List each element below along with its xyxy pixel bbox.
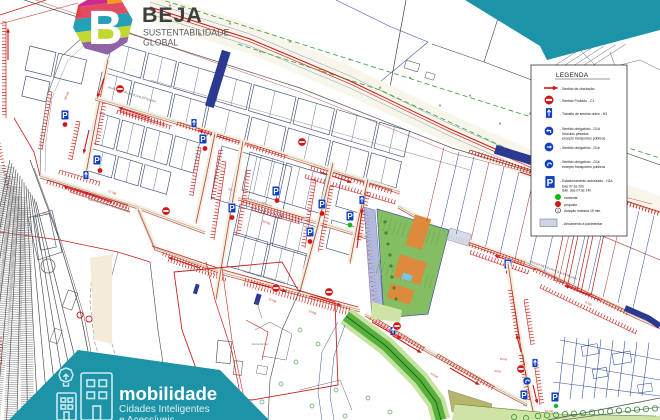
svg-text:P: P [229,204,235,213]
svg-text:- Sentido obrigatório - D1b: - Sentido obrigatório - D1b [560,146,600,150]
svg-text:mobilidade: mobilidade [119,383,217,404]
svg-text:4 lug.: 4 lug. [42,211,50,215]
svg-text:— — —: — — — [599,260,604,269]
svg-text:existente: existente [564,196,578,200]
svg-text:- Sentido de circulação: - Sentido de circulação [560,87,595,91]
svg-text:e Acessíveis: e Acessíveis [119,415,175,420]
svg-text:excepto transportes públicos: excepto transportes públicos [562,137,605,141]
svg-text:— — —: — — — [299,250,303,259]
svg-text:15 lug.: 15 lug. [268,297,278,303]
svg-text:Escola Alentejo: Escola Alentejo [252,343,269,346]
svg-text:Cidades Inteligentes: Cidades Inteligentes [119,404,210,415]
svg-text:- Sentido obrigatório - D1d: - Sentido obrigatório - D1d [560,127,600,131]
svg-text:— — —: — — — [259,170,263,179]
svg-text:proposto: proposto [564,203,577,207]
svg-text:- Sentido obrigatório - D1e: - Sentido obrigatório - D1e [560,160,600,164]
svg-text:SUSTENTABILIDADE: SUSTENTABILIDADE [143,28,229,38]
svg-text:RUA DA METALURGICA ALENTEJANA: RUA DA METALURGICA ALENTEJANA [108,85,157,103]
svg-text:Veículos pesados: Veículos pesados [562,132,589,136]
svg-text:— — —: — — — [350,139,359,143]
svg-text:P: P [552,393,558,402]
svg-text:B: B [88,2,123,55]
svg-text:6 lug.: 6 lug. [585,300,593,306]
svg-text:27 lug.: 27 lug. [108,189,118,196]
svg-text:duração máxima 15 min.: duração máxima 15 min. [564,209,601,213]
svg-text:- Estacionamento autorizado -: - Estacionamento autorizado - H1a [560,179,613,183]
svg-text:P: P [547,178,554,189]
svg-text:LEGENDA: LEGENDA [556,72,589,79]
svg-text:— — —: — — — [280,119,289,123]
svg-text:P: P [319,200,325,209]
svg-text:— — —: — — — [130,69,139,73]
svg-text:P: P [94,156,100,165]
svg-text:26 lug.: 26 lug. [63,90,70,100]
svg-text:8 lug.: 8 lug. [500,357,508,361]
svg-text:13 lug.: 13 lug. [430,371,440,379]
svg-text:P: P [521,391,527,400]
svg-text:P: P [347,212,353,221]
svg-text:P: P [62,111,68,120]
svg-text:38 lug.: 38 lug. [262,219,272,226]
svg-text:— — —: — — — [159,150,163,159]
svg-text:— — —: — — — [200,95,209,99]
svg-text:3 lug.: 3 lug. [494,369,502,373]
svg-text:excepto transportes públicos: excepto transportes públicos [562,165,605,169]
svg-text:Sáb. das 07 às 14h: Sáb. das 07 às 14h [562,189,591,193]
svg-text:BEJA: BEJA [142,3,203,27]
svg-text:- Arruamento a pavimentar: - Arruamento a pavimentar [562,222,603,226]
svg-text:P: P [273,187,279,196]
svg-text:1: 1 [557,209,559,213]
svg-text:P: P [200,135,206,144]
svg-text:- Trânsito de sentido único -: - Trânsito de sentido único - H3 [560,112,607,116]
svg-text:— — —: — — — [559,240,564,249]
svg-text:10 lug.: 10 lug. [308,309,318,315]
svg-text:P: P [307,228,313,237]
svg-text:- Sentido Proibido - C1: - Sentido Proibido - C1 [560,99,594,103]
svg-text:GLOBAL: GLOBAL [143,38,178,48]
